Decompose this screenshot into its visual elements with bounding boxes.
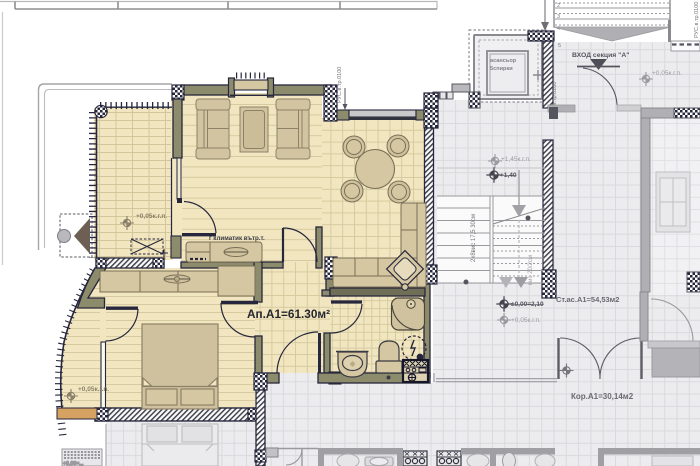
svg-text:вис 20/2см: вис 20/2см: [528, 255, 534, 285]
svg-text:+0,05к.г.п.: +0,05к.г.п.: [136, 213, 167, 220]
svg-text:3: 3: [557, 14, 560, 20]
svg-text:РУС.в.тр.0100: РУС.в.тр.0100: [694, 2, 700, 38]
svg-text:+0,00=...: +0,00=...: [63, 461, 84, 466]
svg-text:г климатик вътр.т.: г климатик вътр.т.: [209, 235, 265, 242]
svg-text:+1,45к.г.п.: +1,45к.г.п.: [501, 156, 531, 163]
svg-text:Ст.ас.А1=54,53м2: Ст.ас.А1=54,53м2: [556, 295, 619, 304]
svg-text:Ап.А1=61.30м²: Ап.А1=61.30м²: [247, 307, 330, 321]
svg-text:+0,05к.г.п.: +0,05к.г.п.: [78, 386, 109, 393]
svg-text:2х8вис 17,5 30см: 2х8вис 17,5 30см: [471, 214, 477, 262]
svg-text:+1,40: +1,40: [500, 172, 517, 179]
svg-text:±0,00=2,10: ±0,00=2,10: [511, 301, 544, 308]
svg-text:5: 5: [558, 43, 561, 49]
svg-text:+0,05к.г.п.: +0,05к.г.п.: [511, 317, 541, 324]
svg-text:+0,05к.г.п.: +0,05к.г.п.: [652, 70, 682, 77]
svg-text:асансьор: асансьор: [490, 58, 517, 64]
svg-text:ВХОД секция "А": ВХОД секция "А": [572, 52, 629, 59]
svg-text:РУС.в.тр.0100: РУС.в.тр.0100: [337, 67, 343, 103]
svg-text:2: 2: [557, 3, 560, 9]
svg-text:Кор.А1=30,14м2: Кор.А1=30,14м2: [571, 392, 634, 401]
svg-text:5спирки: 5спирки: [490, 66, 513, 72]
